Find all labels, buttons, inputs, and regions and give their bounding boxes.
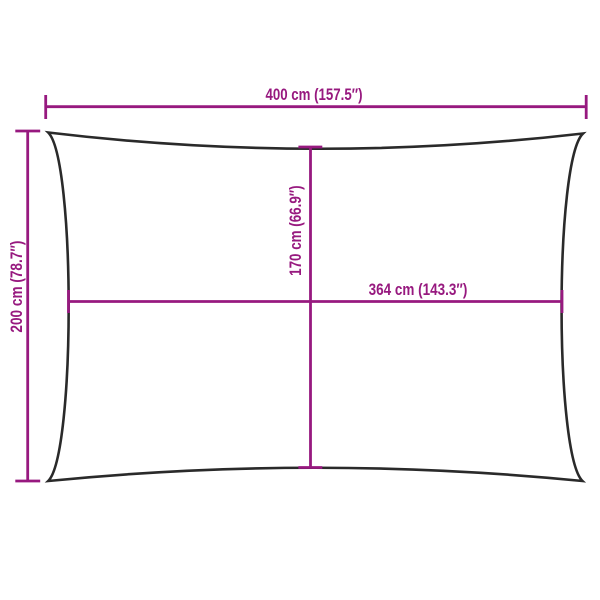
- svg-text:200 cm (78.7″): 200 cm (78.7″): [8, 241, 26, 333]
- svg-text:400 cm (157.5″): 400 cm (157.5″): [266, 86, 363, 104]
- svg-text:364 cm (143.3″): 364 cm (143.3″): [369, 281, 468, 299]
- svg-text:170 cm (66.9″): 170 cm (66.9″): [287, 185, 305, 276]
